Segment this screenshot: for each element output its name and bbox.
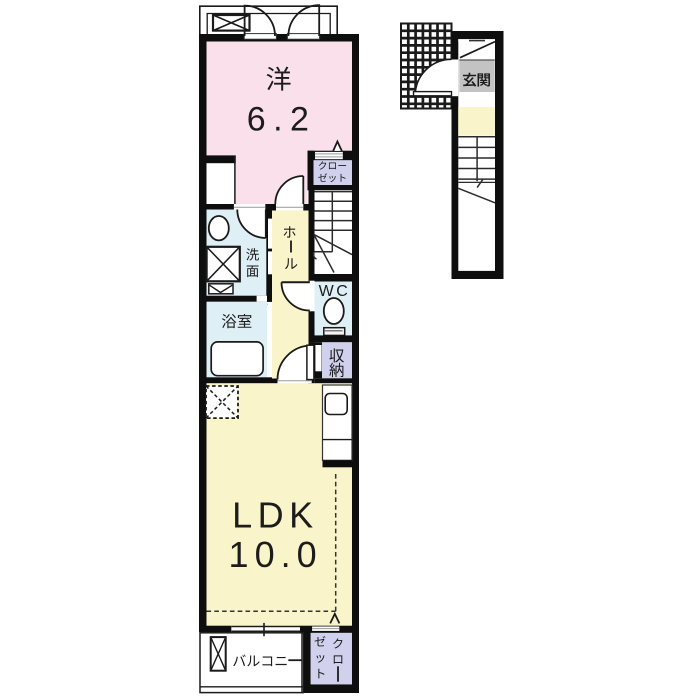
svg-text:10.0: 10.0 [229,534,323,575]
svg-text:LDK: LDK [232,494,319,535]
svg-text:6.2: 6.2 [247,100,317,138]
